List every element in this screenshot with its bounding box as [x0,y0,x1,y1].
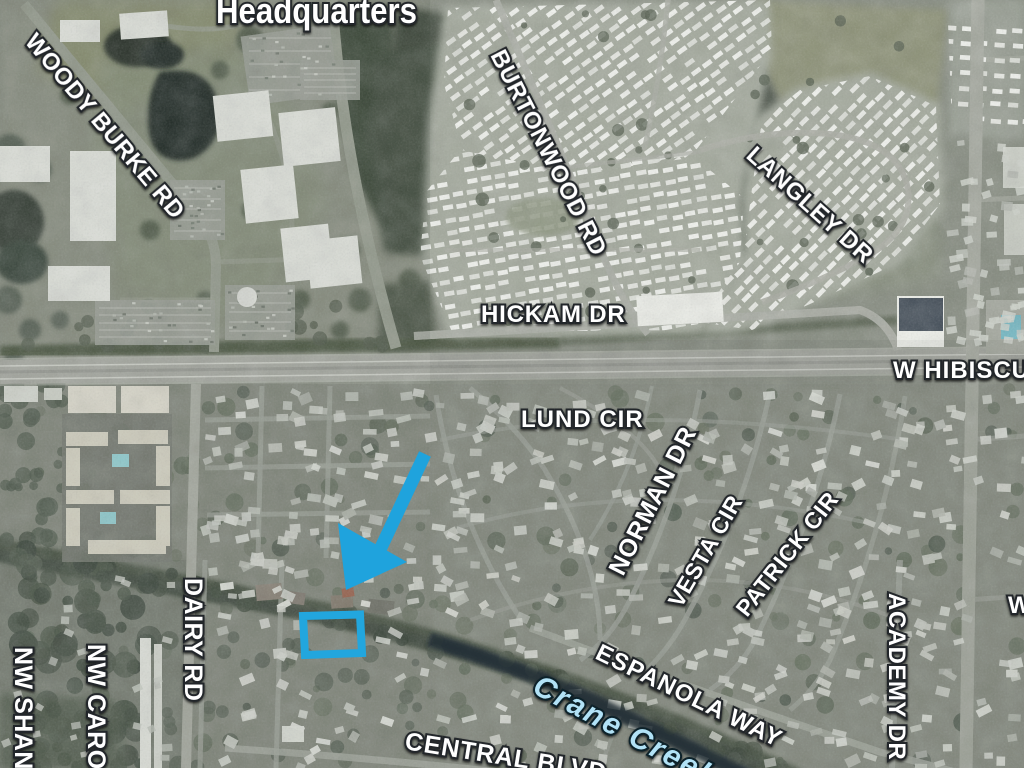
svg-text:LUND CIR: LUND CIR [521,406,644,433]
svg-text:HICKAM DR: HICKAM DR [481,301,626,328]
svg-text:DAIRY RD: DAIRY RD [179,578,207,701]
svg-text:NW CAROLINA ST: NW CAROLINA ST [82,644,110,768]
svg-text:W HIBISCUS: W HIBISCUS [893,357,1024,384]
svg-text:ACADEMY DR: ACADEMY DR [883,593,910,760]
svg-text:Headquarters: Headquarters [216,0,417,31]
svg-text:W NEW: W NEW [1008,592,1024,619]
svg-text:NW SHANNON AVE: NW SHANNON AVE [9,647,37,768]
